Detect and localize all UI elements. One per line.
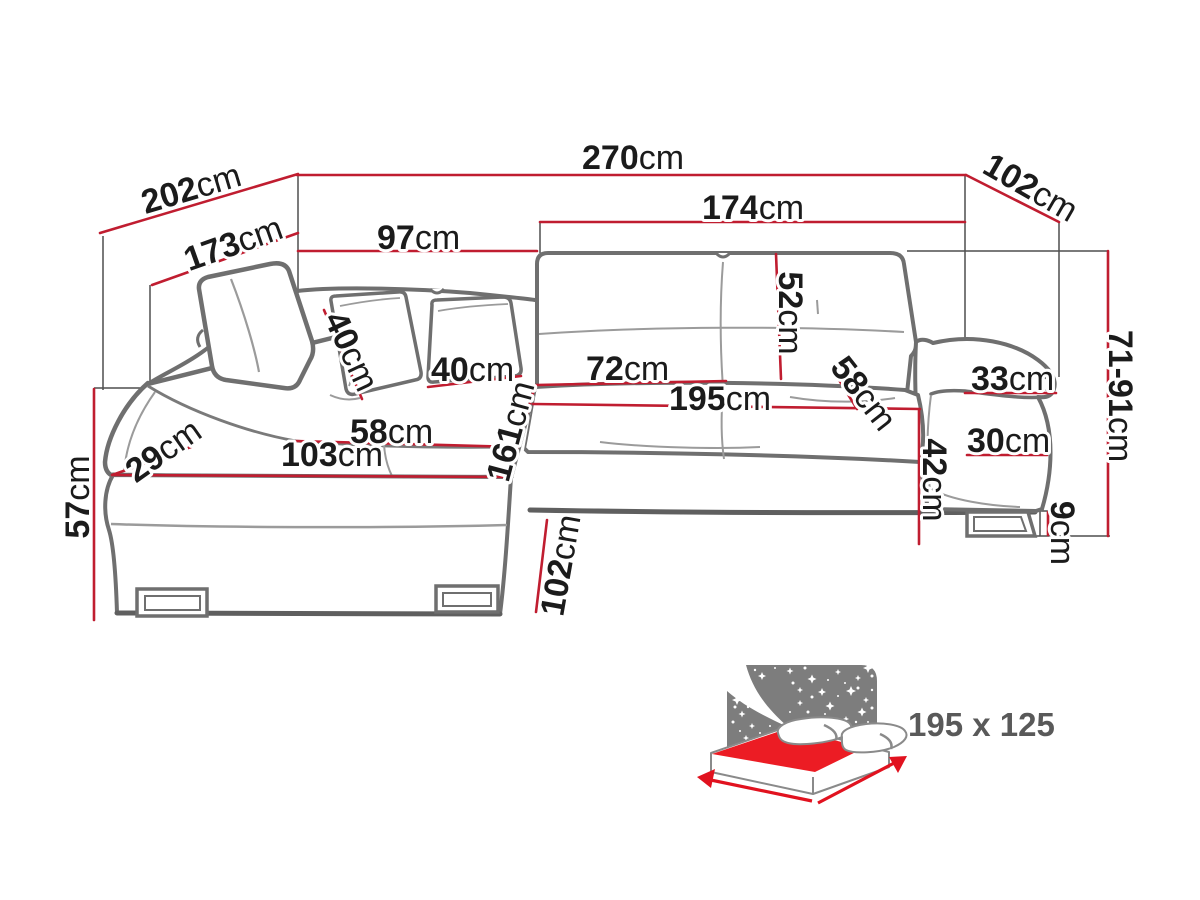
svg-text:195 x 125: 195 x 125 [908,706,1055,743]
svg-text:40cm: 40cm [431,351,514,389]
svg-text:103cm: 103cm [281,436,383,474]
svg-text:33cm: 33cm [971,360,1054,398]
svg-text:72cm: 72cm [586,350,669,388]
svg-text:52cm: 52cm [771,271,809,354]
svg-text:270cm: 270cm [582,139,684,177]
svg-text:174cm: 174cm [702,189,804,227]
svg-text:97cm: 97cm [377,219,460,257]
svg-text:71-91cm: 71-91cm [1101,330,1139,462]
svg-text:195cm: 195cm [669,380,771,418]
svg-text:57cm: 57cm [59,455,97,538]
svg-text:9cm: 9cm [1043,501,1081,565]
svg-text:42cm: 42cm [915,438,953,521]
svg-text:30cm: 30cm [967,422,1050,460]
